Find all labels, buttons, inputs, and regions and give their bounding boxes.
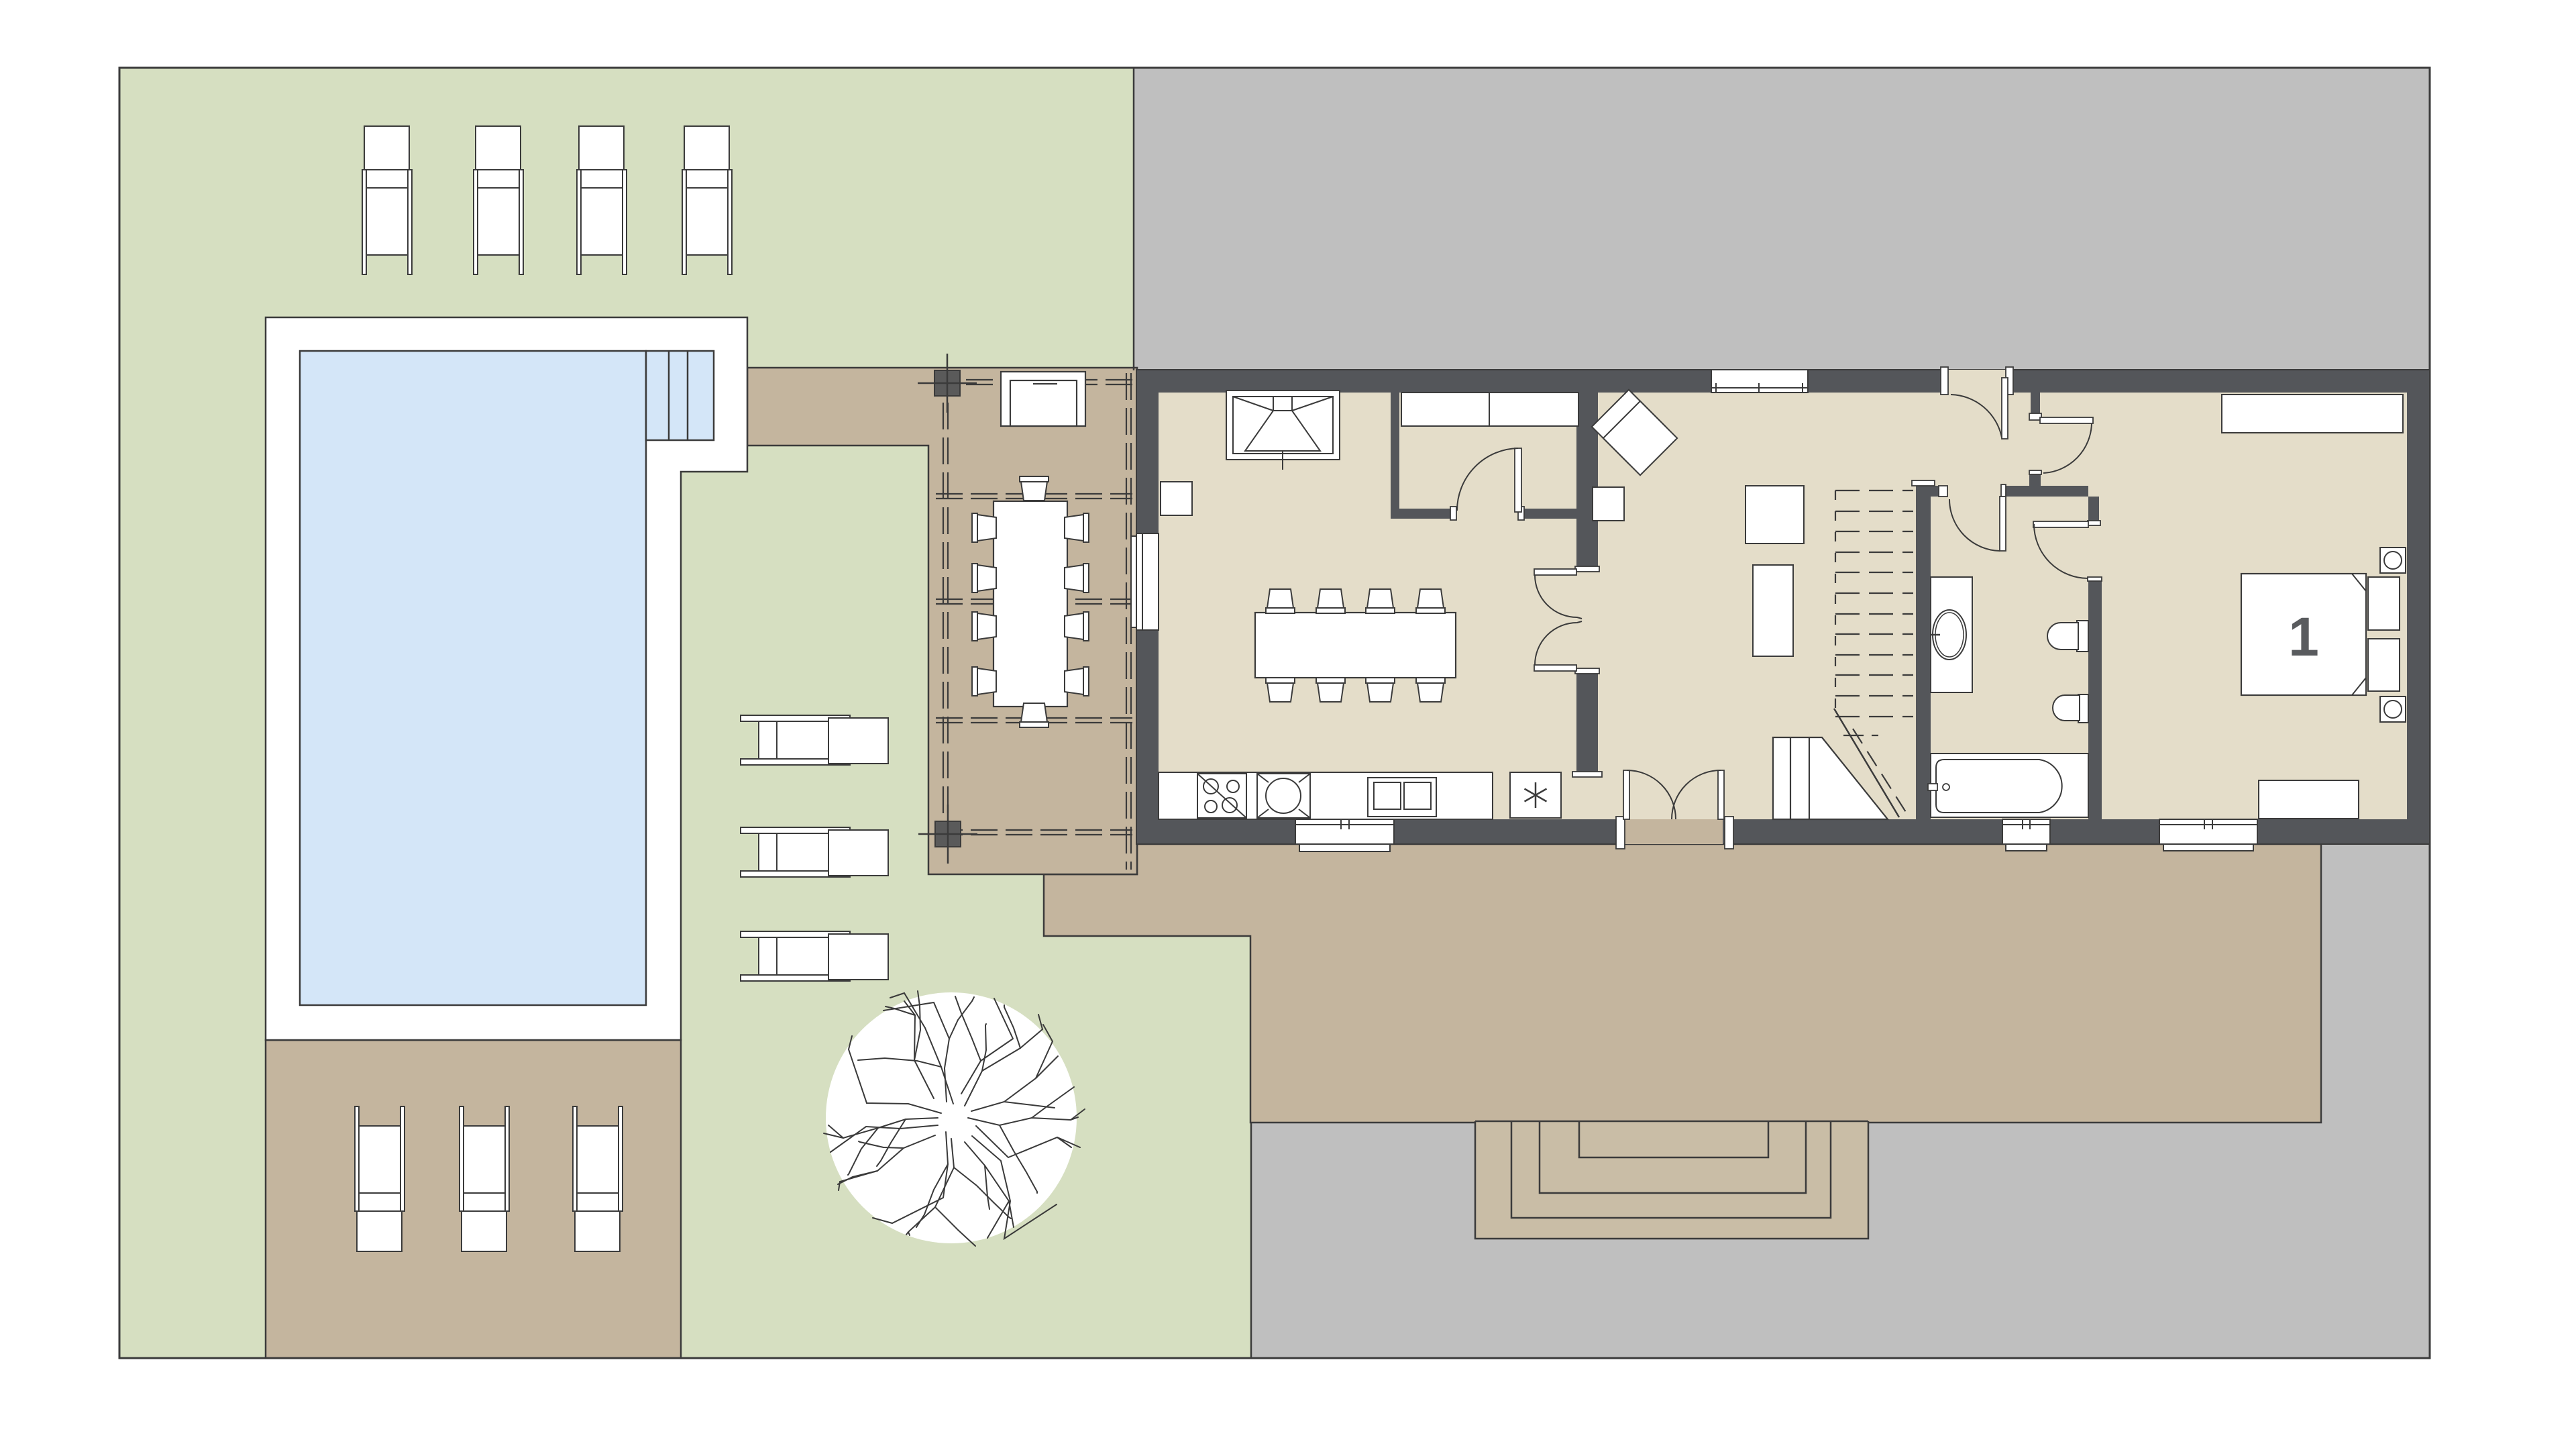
svg-text:1: 1 [2288,607,2319,668]
